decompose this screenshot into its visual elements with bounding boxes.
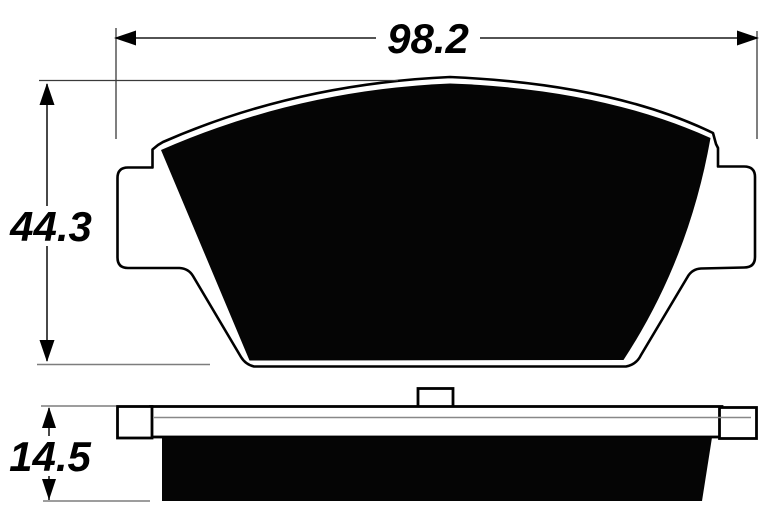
height-arrow-up [40,83,55,105]
width-arrow-left [114,31,136,46]
width-arrow-right [737,31,759,46]
height-arrow-down [40,340,55,362]
width-dimension-label: 98.2 [387,15,469,62]
side-friction-material [162,438,712,502]
thickness-dimension-label: 14.5 [9,433,91,480]
side-view [118,389,757,502]
front-friction-material [161,84,711,361]
height-dimension-label: 44.3 [9,203,92,250]
side-backing-plate [151,407,723,438]
side-left-tab [118,407,153,439]
drawing-canvas: 98.2 44.3 14.5 [0,0,778,520]
thickness-arrow-down [42,479,56,500]
brake-pad-dimension-drawing: 98.2 44.3 14.5 [0,0,778,520]
thickness-arrow-up [42,407,56,428]
side-top-tab [418,389,453,408]
front-view [118,77,756,367]
side-right-tab [720,408,757,439]
